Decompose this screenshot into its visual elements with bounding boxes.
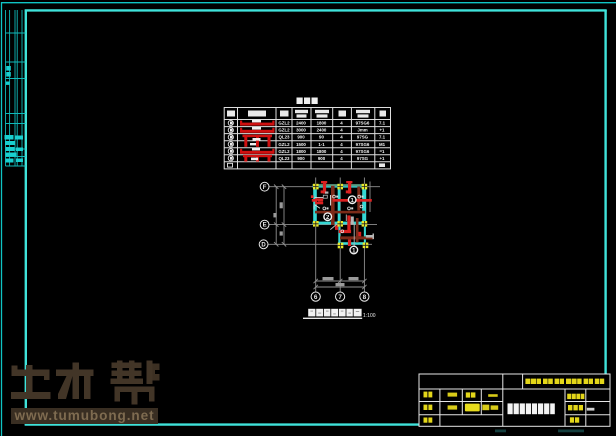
svg-text:1500: 1500 [296, 142, 306, 147]
svg-text:GZL2: GZL2 [278, 128, 290, 133]
svg-text:900: 900 [297, 135, 305, 140]
svg-text:M1: M1 [379, 142, 386, 147]
svg-text:=1: =1 [379, 149, 385, 154]
svg-text:7.1: 7.1 [379, 121, 386, 126]
svg-text:D: D [261, 242, 266, 248]
svg-text:900: 900 [318, 156, 326, 161]
svg-text:F: F [263, 185, 267, 191]
svg-text:GZL2: GZL2 [278, 142, 290, 147]
svg-text:97SG: 97SG [357, 156, 369, 161]
svg-text:Jmm: Jmm [357, 128, 367, 133]
svg-text:1800: 1800 [317, 121, 327, 126]
svg-text:+1: +1 [379, 128, 385, 133]
svg-text:1800: 1800 [317, 149, 327, 154]
svg-text:97SG6: 97SG6 [356, 149, 370, 154]
svg-text:90: 90 [319, 135, 324, 140]
svg-text:97SG6: 97SG6 [356, 142, 370, 147]
svg-text:1800: 1800 [296, 149, 306, 154]
svg-text:7.1: 7.1 [379, 135, 386, 140]
svg-text:3000: 3000 [296, 128, 306, 133]
svg-text:2400: 2400 [296, 121, 306, 126]
svg-text:1-1: 1-1 [318, 142, 325, 147]
svg-text:900: 900 [297, 156, 305, 161]
svg-text:97SG6: 97SG6 [356, 121, 370, 126]
svg-text:7: 7 [338, 294, 342, 301]
svg-text:E: E [263, 223, 267, 229]
svg-text:6: 6 [314, 294, 318, 301]
svg-text:GZL2: GZL2 [278, 121, 290, 126]
svg-text:8: 8 [363, 294, 367, 301]
svg-text:2400: 2400 [317, 128, 327, 133]
svg-text:GZL2: GZL2 [278, 149, 290, 154]
svg-text:+1: +1 [379, 156, 385, 161]
svg-text:www.tumubong.net: www.tumubong.net [14, 408, 155, 423]
svg-text:1:100: 1:100 [363, 313, 376, 319]
svg-text:QL23: QL23 [279, 156, 291, 161]
svg-text:97SG: 97SG [357, 135, 369, 140]
svg-text:QL23: QL23 [279, 135, 291, 140]
